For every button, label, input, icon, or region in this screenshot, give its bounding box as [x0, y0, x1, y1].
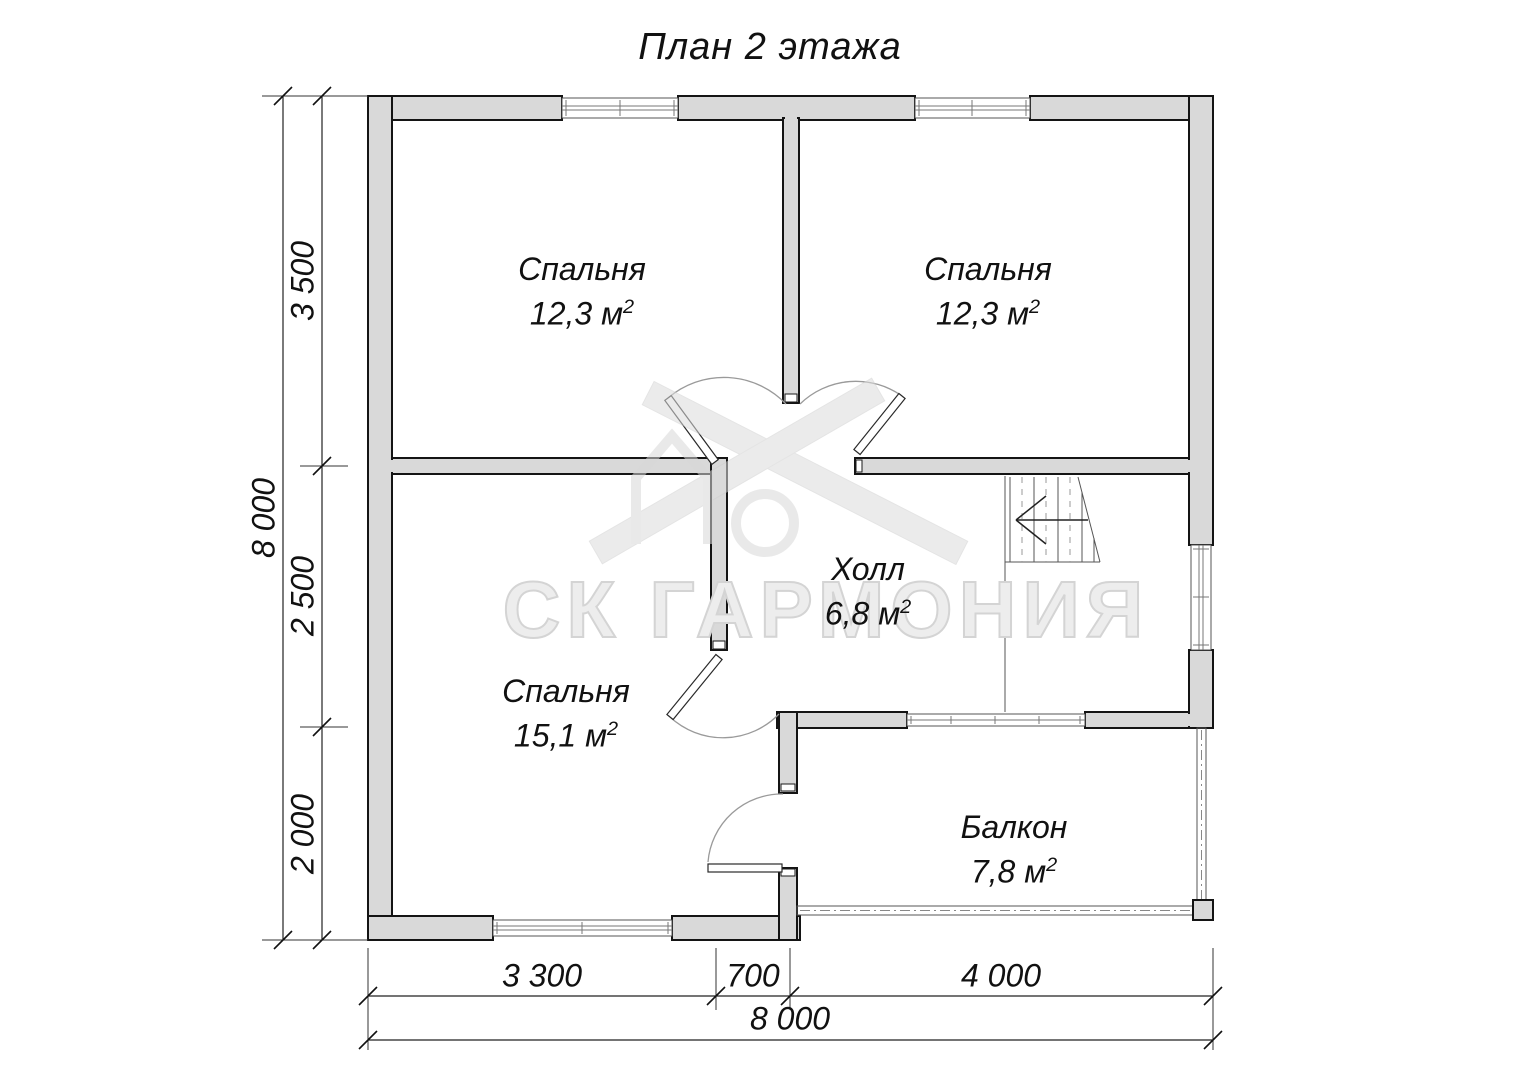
dim-vertical-segment-2: 2 500 — [285, 556, 322, 636]
dim-horizontal-segment-1: 3 300 — [502, 958, 582, 995]
floor-plan-drawing — [0, 0, 1528, 1080]
room-label-balcony: Балкон 7,8 м2 — [961, 808, 1068, 891]
room-area: 6,8 м2 — [825, 588, 911, 633]
door-bedroom-bottom — [667, 655, 779, 738]
dim-horizontal-total: 8 000 — [750, 1001, 830, 1038]
room-area: 7,8 м2 — [961, 846, 1068, 891]
page-title: План 2 этажа — [638, 26, 902, 69]
window-right — [1191, 545, 1211, 650]
window-balcony-band — [907, 714, 1085, 726]
door-balcony — [708, 794, 783, 872]
room-name: Спальня — [518, 250, 646, 288]
dim-horizontal-segment-2: 700 — [726, 958, 779, 995]
room-area: 15,1 м2 — [502, 710, 630, 755]
dim-horizontal-segment-3: 4 000 — [961, 958, 1041, 995]
room-label-bedroom-top-right: Спальня 12,3 м2 — [924, 250, 1052, 333]
room-area: 12,3 м2 — [924, 288, 1052, 333]
room-name: Спальня — [924, 250, 1052, 288]
room-label-bedroom-top-left: Спальня 12,3 м2 — [518, 250, 646, 333]
dim-vertical-segment-1: 3 500 — [285, 241, 322, 321]
room-name: Холл — [825, 550, 911, 588]
room-label-hall: Холл 6,8 м2 — [825, 550, 911, 633]
dim-vertical-segment-3: 2 000 — [285, 794, 322, 874]
room-name: Балкон — [961, 808, 1068, 846]
stair-direction-arrow — [1016, 496, 1088, 544]
windows — [493, 98, 1211, 936]
window-bottom — [493, 920, 672, 936]
floor-plan-page: СК ГАРМОНИЯ План 2 этажа Спальня 12,3 м2… — [0, 0, 1528, 1080]
dim-vertical-total: 8 000 — [246, 478, 283, 558]
room-area: 12,3 м2 — [518, 288, 646, 333]
room-label-bedroom-bottom: Спальня 15,1 м2 — [502, 672, 630, 755]
window-top-right — [915, 98, 1030, 118]
window-top-left — [562, 98, 678, 118]
room-name: Спальня — [502, 672, 630, 710]
